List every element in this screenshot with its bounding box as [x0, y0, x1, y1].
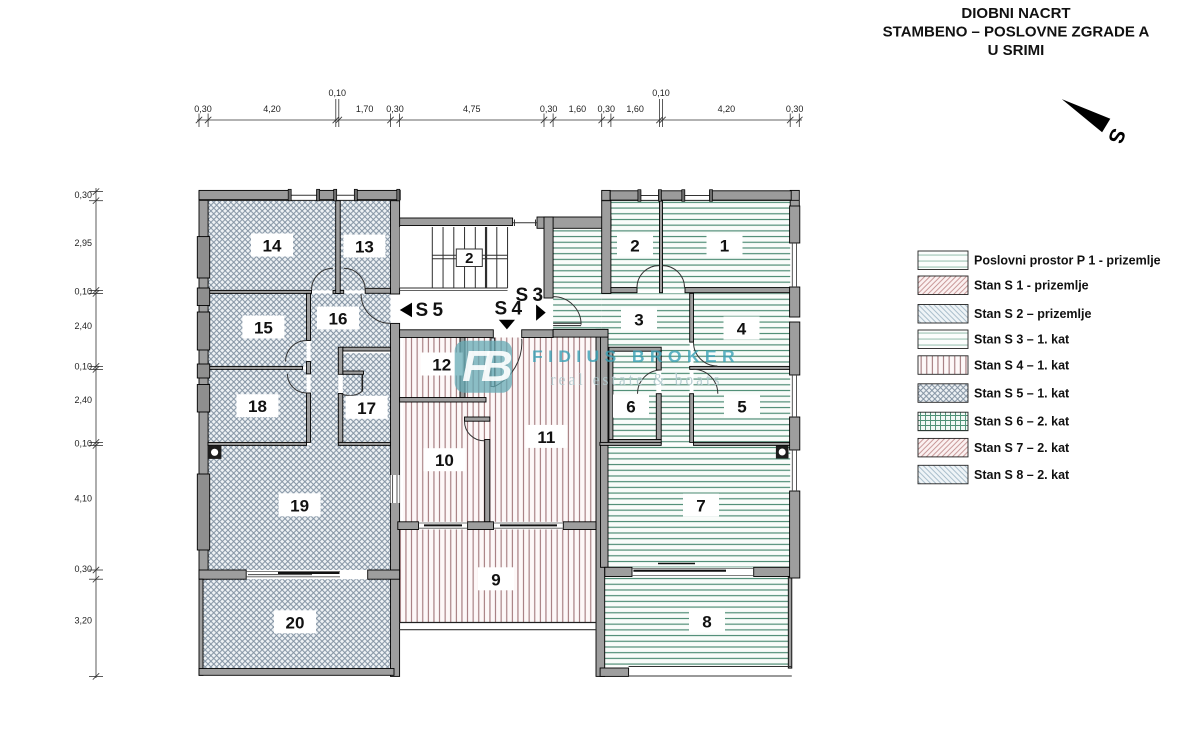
svg-text:18: 18	[248, 397, 267, 416]
svg-text:0,30: 0,30	[786, 104, 804, 114]
svg-text:0,30: 0,30	[194, 104, 212, 114]
svg-text:8: 8	[702, 613, 711, 632]
svg-text:2,40: 2,40	[74, 321, 92, 331]
svg-text:12: 12	[432, 356, 451, 375]
svg-text:1,70: 1,70	[356, 104, 374, 114]
svg-text:15: 15	[254, 319, 273, 338]
svg-text:Stan S 6 – 2. kat: Stan S 6 – 2. kat	[974, 415, 1070, 429]
svg-text:0,10: 0,10	[74, 362, 92, 372]
svg-text:11: 11	[537, 428, 555, 447]
svg-text:Stan S 1 - prizemlje: Stan S 1 - prizemlje	[974, 279, 1089, 293]
svg-text:S 5: S 5	[416, 300, 444, 321]
svg-text:0,10: 0,10	[329, 88, 347, 98]
svg-text:4,10: 4,10	[74, 494, 92, 504]
svg-text:2,95: 2,95	[74, 238, 92, 248]
svg-text:Stan S 4 – 1. kat: Stan S 4 – 1. kat	[974, 358, 1070, 372]
svg-text:14: 14	[263, 237, 282, 256]
svg-text:Poslovni prostor P 1 - prizeml: Poslovni prostor P 1 - prizemlje	[974, 254, 1161, 268]
svg-text:19: 19	[290, 496, 309, 515]
svg-text:9: 9	[491, 570, 500, 589]
svg-text:0,30: 0,30	[598, 104, 616, 114]
svg-text:FB: FB	[462, 342, 512, 391]
svg-text:0,10: 0,10	[652, 88, 670, 98]
svg-text:2: 2	[465, 250, 473, 267]
svg-text:1,60: 1,60	[626, 104, 644, 114]
svg-text:4: 4	[737, 320, 747, 339]
svg-text:0,10: 0,10	[74, 287, 92, 297]
svg-text:Stan S 8 – 2. kat: Stan S 8 – 2. kat	[974, 468, 1070, 482]
svg-text:4,20: 4,20	[263, 104, 281, 114]
svg-text:16: 16	[329, 310, 348, 329]
svg-text:10: 10	[435, 451, 454, 470]
svg-text:20: 20	[286, 613, 305, 632]
svg-text:1: 1	[720, 237, 729, 256]
svg-text:13: 13	[355, 238, 374, 257]
svg-text:0,30: 0,30	[386, 104, 404, 114]
svg-text:real estate & boats: real estate & boats	[551, 370, 723, 389]
svg-text:4,20: 4,20	[718, 104, 736, 114]
svg-text:2: 2	[630, 237, 639, 256]
svg-text:5: 5	[737, 398, 746, 417]
svg-text:4,75: 4,75	[463, 104, 481, 114]
svg-text:0,30: 0,30	[74, 564, 92, 574]
svg-text:0,30: 0,30	[540, 104, 558, 114]
svg-text:0,10: 0,10	[74, 439, 92, 449]
svg-text:17: 17	[357, 399, 376, 418]
svg-text:7: 7	[696, 497, 705, 516]
svg-text:Stan S 3 – 1. kat: Stan S 3 – 1. kat	[974, 333, 1070, 347]
svg-text:Stan S 5 – 1. kat: Stan S 5 – 1. kat	[974, 386, 1070, 400]
svg-text:DIOBNI NACRT: DIOBNI NACRT	[961, 5, 1070, 22]
svg-text:3: 3	[634, 310, 643, 329]
svg-text:S 3: S 3	[516, 285, 543, 306]
svg-text:2,40: 2,40	[74, 395, 92, 405]
svg-text:U SRIMI: U SRIMI	[988, 42, 1045, 59]
svg-text:1,60: 1,60	[569, 104, 587, 114]
svg-text:Stan S 7 – 2. kat: Stan S 7 – 2. kat	[974, 441, 1070, 455]
svg-text:FIDIUS BROKER: FIDIUS BROKER	[532, 348, 740, 366]
svg-text:6: 6	[626, 398, 635, 417]
svg-text:STAMBENO – POSLOVNE ZGRADE A: STAMBENO – POSLOVNE ZGRADE A	[883, 24, 1150, 41]
svg-text:3,20: 3,20	[74, 616, 92, 626]
svg-text:Stan S 2 – prizemlje: Stan S 2 – prizemlje	[974, 307, 1091, 321]
svg-text:0,30: 0,30	[74, 190, 92, 200]
